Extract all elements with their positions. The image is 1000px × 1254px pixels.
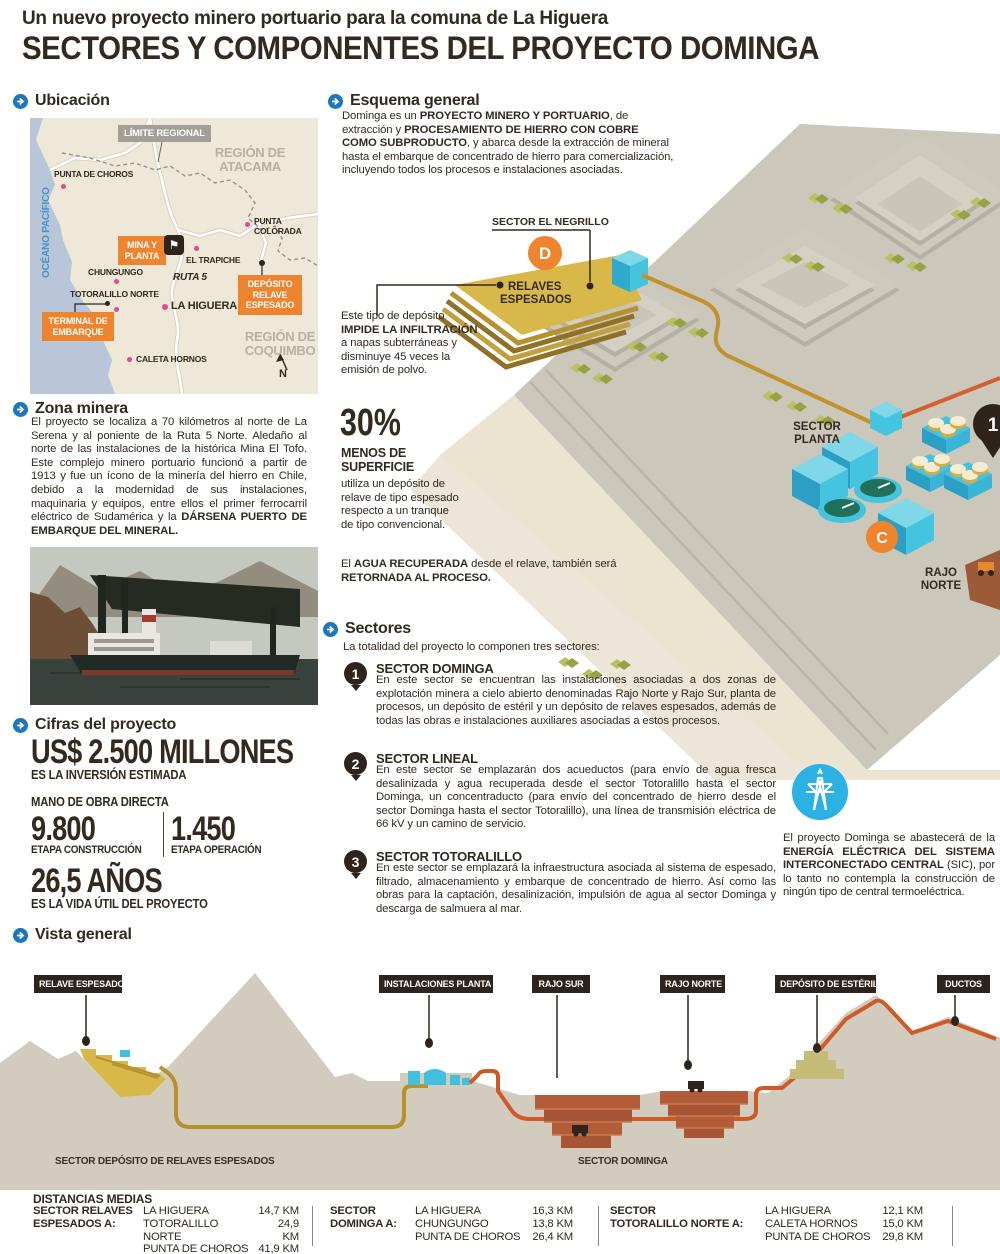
cifras-divider (163, 812, 164, 857)
energia-text: El proyecto Dominga se abastecerá de la … (783, 832, 995, 900)
punta-de-choros-dot (61, 184, 66, 189)
dist-row: TOTORALILLO NORTE24,9 KM (143, 1218, 299, 1244)
section-label: Esquema general (350, 92, 480, 110)
dist-row: LA HIGUERA12,1 KM (765, 1205, 923, 1218)
header: Un nuevo proyecto minero portuario para … (22, 8, 888, 67)
map-label-el-trapiche: EL TRAPICHE (186, 256, 240, 266)
arrow-circle-icon (13, 928, 28, 943)
iso-label-relaves-1: RELAVES (508, 281, 562, 293)
arrow-circle-icon (328, 94, 343, 109)
totoralillo-dot (105, 301, 110, 306)
section-label: Ubicación (35, 92, 110, 110)
distancias-heading: DISTANCIAS MEDIAS (33, 1192, 978, 1206)
dist-row: PUNTA DE CHOROS26,4 KM (415, 1231, 573, 1244)
pct-text: utiliza un depósito de relave de tipo es… (341, 478, 461, 532)
dist-row: LA HIGUERA16,3 KM (415, 1205, 573, 1218)
vista-label-rajo-sur: RAJO SUR (532, 975, 590, 993)
map-label-region-coquimbo: REGIÓN DE COQUIMBO (238, 330, 318, 357)
vista-label-esteril: DEPÓSITO DE ESTÉRIL (775, 975, 876, 993)
construction-label: ETAPA CONSTRUCCIÓN (31, 844, 154, 856)
page-title: SECTORES Y COMPONENTES DEL PROYECTO DOMI… (22, 30, 819, 67)
dist-row: PUNTA DE CHOROS29,8 KM (765, 1231, 923, 1244)
sector-3-pin: 3 (344, 850, 367, 873)
header-kicker: Un nuevo proyecto minero portuario para … (22, 8, 888, 30)
vista-sector-left: SECTOR DEPÓSITO DE RELAVES ESPESADOS (55, 1156, 275, 1167)
photo-deckhouse (210, 641, 252, 657)
section-cifras-heading: Cifras del proyecto (13, 716, 176, 734)
vista-label-rajo-norte: RAJO NORTE (660, 975, 725, 993)
zona-minera-text: El proyecto se localiza a 70 kilómetros … (31, 416, 307, 538)
deposito-dot (259, 260, 265, 266)
map-label-mina-y-planta: MINA Y PLANTA (118, 236, 166, 265)
punta-colorada-dot (245, 222, 250, 227)
photo-superstructure (88, 633, 160, 657)
vista-label-instalaciones: INSTALACIONES PLANTA (379, 975, 493, 993)
section-ubicacion-heading: Ubicación (13, 92, 110, 110)
deposito-text: Este tipo de depósito IMPIDE LA INFILTRA… (341, 310, 479, 378)
arrow-circle-icon (13, 94, 28, 109)
totoralillo-port-dot (114, 307, 119, 312)
sector-3-text: En este sector se emplazará la infraestr… (376, 862, 776, 916)
operation-label: ETAPA OPERACIÓN (171, 844, 271, 856)
marker-d: D (539, 244, 551, 263)
marker-c: C (876, 530, 888, 547)
la-higuera-dot (162, 304, 168, 310)
map-label-terminal: TERMINAL DE EMBARQUE (42, 312, 114, 341)
iso-label-rajo-norte-2: NORTE (921, 580, 962, 592)
labor-label: MANO DE OBRA DIRECTA (31, 795, 184, 809)
life-label: ES LA VIDA ÚTIL DEL PROYECTO (31, 897, 227, 911)
dist-row: CHUNGUNGO13,8 KM (415, 1218, 573, 1231)
map-label-punta-colorada: PUNTA COLORADA (254, 217, 302, 236)
distancias-table: DISTANCIAS MEDIAS SECTOR RELAVES ESPESAD… (33, 1192, 978, 1252)
investment-value: US$ 2.500 MILLONES (31, 733, 359, 772)
sectores-intro: La totalidad del proyecto lo componen tr… (343, 641, 743, 655)
caleta-hornos-dot (127, 357, 132, 362)
infographic-canvas: Un nuevo proyecto minero portuario para … (0, 0, 1000, 1254)
iso-label-rajo-norte-1: RAJO (925, 567, 957, 579)
dist-divider (312, 1206, 313, 1246)
sector-1-text: En este sector se encuentran las instala… (376, 674, 776, 728)
sector-2-text: En este sector se emplazarán dos acueduc… (376, 764, 776, 832)
el-trapiche-dot (194, 246, 199, 251)
vista-label-relave: RELAVE ESPESADO (34, 975, 122, 993)
life-value: 26,5 AÑOS (31, 862, 195, 901)
mine-flag-icon: ⚑ (164, 235, 184, 255)
dist-row: LA HIGUERA14,7 KM (143, 1205, 299, 1218)
map-label-ruta5: RUTA 5 (173, 273, 207, 283)
map-label-deposito: DEPÓSITO RELAVE ESPESADO (238, 275, 302, 315)
vista-label-ductos: DUCTOS (937, 975, 990, 993)
section-label: Cifras del proyecto (35, 716, 176, 734)
map-label-region-atacama: REGIÓN DE ATACAMA (208, 146, 292, 173)
pct-value: 30% (340, 402, 416, 445)
map-label-chungungo: CHUNGUNGO (88, 268, 143, 278)
location-map: LÍMITE REGIONAL REGIÓN DE ATACAMA PUNTA … (30, 118, 318, 394)
dist-row: CALETA HORNOS15,0 KM (765, 1218, 923, 1231)
iso-label-negrillo: SECTOR EL NEGRILLO (492, 216, 609, 228)
section-label: Vista general (35, 926, 132, 944)
photo-waterline (82, 670, 294, 675)
power-pylon-icon (792, 764, 848, 820)
sector-1-pin: 1 (344, 662, 367, 685)
map-label-oceano-pacifico: OCÉANO PACÍFICO (42, 187, 52, 278)
map-compass-n: N (279, 370, 287, 380)
section-vista-heading: Vista general (13, 926, 132, 944)
iso-label-sector-planta-2: PLANTA (794, 434, 840, 446)
iso-label-relaves-2: ESPESADOS (500, 294, 572, 306)
esquema-text: Dominga es un PROYECTO MINERO Y PORTUARI… (342, 110, 676, 178)
section-esquema-heading: Esquema general (328, 92, 480, 110)
dist-divider (598, 1206, 599, 1246)
map-label-totoralillo: TOTORALILLO NORTE (70, 290, 159, 300)
iso-negrillo-building (612, 250, 648, 292)
dist-divider (952, 1206, 953, 1246)
map-label-limite-regional: LÍMITE REGIONAL (118, 125, 211, 142)
map-label-la-higuera: LA HIGUERA (171, 302, 237, 312)
section-sectores-heading: Sectores (323, 620, 411, 638)
pin-1: 1 (988, 415, 999, 436)
arrow-circle-icon (13, 718, 28, 733)
pct-bold-label: MENOS DE SUPERFICIE (341, 446, 451, 474)
vista-sector-right: SECTOR DOMINGA (578, 1156, 668, 1167)
map-label-caleta-hornos: CALETA HORNOS (136, 355, 207, 365)
sector-2-pin: 2 (344, 752, 367, 775)
arrow-circle-icon (13, 402, 28, 417)
limit-leader (158, 142, 162, 162)
dist-row: PUNTA DE CHOROS41,9 KM (143, 1243, 299, 1254)
map-label-punta-de-choros: PUNTA DE CHOROS (54, 170, 133, 180)
chungungo-dot (114, 279, 119, 284)
iso-label-sector-planta-1: SECTOR (793, 421, 841, 433)
section-label: Sectores (345, 620, 411, 638)
investment-label: ES LA INVERSIÓN ESTIMADA (31, 768, 204, 782)
historic-port-photo (30, 547, 318, 705)
arrow-circle-icon (323, 622, 338, 637)
agua-text: El AGUA RECUPERADA desde el relave, tamb… (341, 558, 661, 585)
